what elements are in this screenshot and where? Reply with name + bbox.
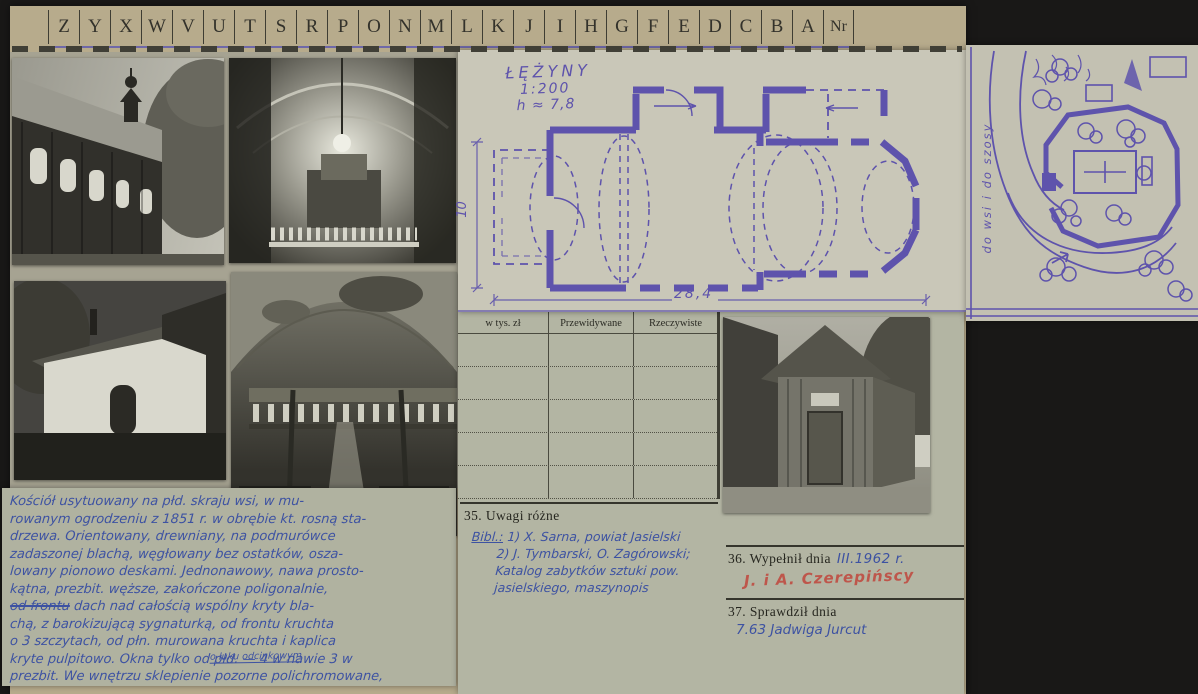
index-letter: O (358, 10, 389, 44)
finance-table: w tys. zł Przewidywane Rzeczywiste (458, 312, 720, 499)
finance-col-actual: Rzeczywiste (633, 312, 717, 333)
road-label: do wsi i do szosy (980, 103, 994, 273)
bibliography-line: 2) J. Tymbarski, O. Zagórowski; (470, 545, 691, 562)
scanned-record-card: Z Y X W V U T S R P O N M L K J I H G F … (0, 0, 1198, 694)
photo-content (12, 58, 224, 265)
index-letter: D (699, 10, 730, 44)
index-letter: J (513, 10, 544, 44)
finance-col-unit: w tys. zł (458, 312, 548, 333)
finance-table-row (458, 367, 717, 400)
description-line: o 3 szczytach, od płn. murowana kruchta … (9, 633, 450, 651)
index-letter: R (296, 10, 327, 44)
index-letter: H (575, 10, 606, 44)
index-letter: S (265, 10, 296, 44)
description-line-rest: dach nad całością wspólny kryty bla- (69, 599, 314, 614)
index-letter: F (637, 10, 668, 44)
description-line: lowany pionowo deskami. Jednonawowy, naw… (9, 563, 450, 581)
photo-exterior-annex (14, 281, 226, 480)
index-letter: C (730, 10, 761, 44)
photo-content (723, 317, 930, 513)
description-line: chą, z barokizującą sygnaturką, od front… (9, 616, 450, 634)
finance-col-planned: Przewidywane (548, 312, 633, 333)
letter-index-strip: Z Y X W V U T S R P O N M L K J I H G F … (48, 10, 854, 48)
section-37-label: 37. Sprawdził dnia (728, 604, 837, 620)
photo-content (229, 58, 456, 263)
site-plan-drawing (966, 45, 1198, 321)
struck-words: od frontu (9, 599, 70, 614)
index-letter: E (668, 10, 699, 44)
index-letter: M (420, 10, 451, 44)
section-37-note-handwritten: 7.63 Jadwiga Jurcut (736, 622, 866, 638)
interline-insertion: o łuku odcinkowym (210, 650, 303, 664)
index-letter: V (172, 10, 203, 44)
form-lower-section: w tys. zł Przewidywane Rzeczywiste 35. U… (458, 312, 964, 694)
index-letter: I (544, 10, 575, 44)
index-letter: X (110, 10, 141, 44)
section-36-date-handwritten: III.1962 r. (837, 551, 905, 567)
finance-table-row (458, 433, 717, 466)
bibliography-lead: Bibl.: (471, 529, 504, 544)
finance-table-row (458, 466, 717, 499)
section-36-label: 36. Wypełnił dnia (728, 551, 831, 566)
description-line: Kościół usytuowany na płd. skraju wsi, w… (9, 493, 450, 511)
index-letter: W (141, 10, 172, 44)
index-letter: G (606, 10, 637, 44)
plan-side-dimension: 10 (455, 201, 470, 218)
index-letter: B (761, 10, 792, 44)
photo-mount-panel (10, 52, 458, 488)
section-36-row: 36. Wypełnił dniaIII.1962 r. (728, 551, 905, 567)
floor-plan-card: ŁĘŻYNY 1:200 h ≈ 7,8 (458, 50, 966, 312)
photo-content (14, 281, 226, 480)
section-divider (726, 545, 964, 547)
index-letter: P (327, 10, 358, 44)
plan-label-block: ŁĘŻYNY 1:200 h ≈ 7,8 (505, 61, 592, 115)
index-letter: K (482, 10, 513, 44)
photo-interior-altar (229, 58, 456, 263)
index-letter: Y (79, 10, 110, 44)
index-letter: N (389, 10, 420, 44)
index-letter: T (234, 10, 265, 44)
index-letter: Z (48, 10, 79, 44)
surveyor-stamp: J. i A. Czerepińscy (744, 566, 915, 590)
finance-table-row (458, 400, 717, 433)
handwritten-description: Kościół usytuowany na płd. skraju wsi, w… (2, 488, 456, 686)
site-plan-card: do wsi i do szosy (966, 45, 1198, 321)
description-line: rowanym ogrodzeniu z 1851 r. w obrębie k… (9, 511, 450, 529)
description-line: drzewa. Orientowany, drewniany, na podmu… (9, 528, 450, 546)
index-letter: L (451, 10, 482, 44)
finance-table-header: w tys. zł Przewidywane Rzeczywiste (458, 312, 717, 334)
section-divider (460, 502, 718, 504)
photo-church-exterior-south (12, 58, 224, 265)
ruler-tick-line (12, 46, 962, 52)
section-35-label: 35. Uwagi różne (464, 508, 560, 524)
plan-width-dimension: 28,4 (674, 286, 713, 302)
finance-table-row (458, 334, 717, 367)
section-35-notes: Bibl.: 1) X. Sarna, powiat Jasielski 2) … (468, 528, 693, 596)
index-letter: A (792, 10, 823, 44)
index-letter: U (203, 10, 234, 44)
description-line: od frontu dach nad całością wspólny kryt… (9, 598, 450, 616)
photo-wooden-porch (723, 317, 930, 513)
index-letter-nr: Nr (823, 10, 854, 44)
bibliography-line: 1) X. Sarna, powiat Jasielski (507, 529, 681, 544)
description-line: kątna, prezbit. węższe, zakończone polig… (9, 581, 450, 599)
description-line: zadaszonej blachą, węgłowany bez ostatkó… (9, 546, 450, 564)
plan-village-name: ŁĘŻYNY (505, 61, 591, 83)
plan-height-note: h ≈ 7,8 (516, 96, 592, 115)
bibliography-line: jasielskiego, maszynopis (468, 579, 689, 596)
section-divider (726, 598, 964, 600)
bibliography-line: Katalog zabytków sztuki pow. (469, 562, 690, 579)
description-line: prezbit. We wnętrzu sklepienie pozorne p… (9, 668, 450, 686)
